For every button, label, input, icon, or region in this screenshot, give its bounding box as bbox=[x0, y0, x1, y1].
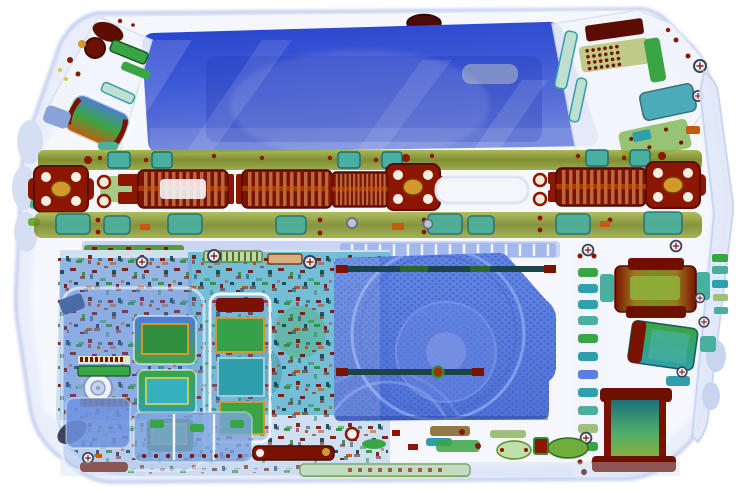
screw bbox=[671, 241, 682, 252]
screw bbox=[304, 256, 316, 268]
screw bbox=[208, 250, 220, 262]
smd-dot bbox=[686, 54, 691, 59]
hinge-spring bbox=[328, 172, 391, 207]
top-speck bbox=[118, 19, 122, 23]
orange-bit bbox=[140, 224, 150, 230]
screw bbox=[696, 294, 705, 303]
screw bbox=[677, 367, 687, 377]
hinge-spring bbox=[550, 168, 652, 206]
hinge-gap-rod bbox=[436, 177, 528, 203]
transformer-b bbox=[627, 320, 698, 371]
lid-panel bbox=[92, 22, 598, 160]
teal-bar bbox=[666, 376, 690, 386]
screw bbox=[699, 317, 709, 327]
smd-dot bbox=[58, 68, 62, 72]
top-right-board bbox=[552, 10, 712, 172]
orange-bit bbox=[686, 126, 700, 134]
top-speck bbox=[131, 23, 135, 27]
bead bbox=[714, 307, 728, 314]
hinge-spring bbox=[236, 170, 338, 208]
bead bbox=[713, 294, 728, 301]
smd-dot bbox=[666, 28, 670, 32]
dot-row bbox=[142, 454, 242, 458]
transformer-c bbox=[592, 388, 676, 472]
green-bit bbox=[700, 336, 716, 352]
orange-bit bbox=[392, 223, 404, 230]
fan-edge bbox=[336, 416, 548, 420]
capacitor bbox=[85, 38, 105, 58]
hinge-plate bbox=[118, 174, 134, 186]
bolt-head bbox=[424, 220, 433, 229]
bead bbox=[712, 280, 728, 288]
screw bbox=[583, 245, 594, 256]
xray-image bbox=[0, 0, 740, 493]
transformer-a bbox=[600, 258, 710, 318]
fan-hub bbox=[433, 367, 444, 378]
smd-dot bbox=[67, 57, 73, 63]
connector-teeth bbox=[78, 356, 130, 376]
orange-bit bbox=[96, 454, 102, 458]
red-bar bbox=[253, 446, 334, 460]
blotch bbox=[702, 382, 720, 410]
smd-dot bbox=[76, 72, 81, 77]
screw bbox=[694, 60, 706, 72]
bead bbox=[712, 266, 728, 274]
hinge-plate bbox=[118, 192, 134, 204]
header-connector bbox=[268, 254, 302, 264]
screw bbox=[137, 257, 148, 268]
hinge-cross-bracket bbox=[28, 166, 94, 212]
screw bbox=[83, 453, 93, 463]
bolt-head bbox=[347, 218, 357, 228]
heat-pipe-lower bbox=[336, 368, 484, 376]
bottom-shadow bbox=[60, 462, 680, 476]
battery-module bbox=[66, 398, 130, 448]
smd-dot bbox=[674, 38, 679, 43]
bead bbox=[712, 254, 728, 262]
orange-bit bbox=[600, 221, 610, 227]
smd-dot bbox=[64, 77, 68, 81]
heat-pipe-upper bbox=[336, 265, 556, 273]
bracket bbox=[98, 142, 118, 150]
smd-dot bbox=[78, 40, 86, 48]
hinge-spring-window bbox=[160, 179, 206, 199]
